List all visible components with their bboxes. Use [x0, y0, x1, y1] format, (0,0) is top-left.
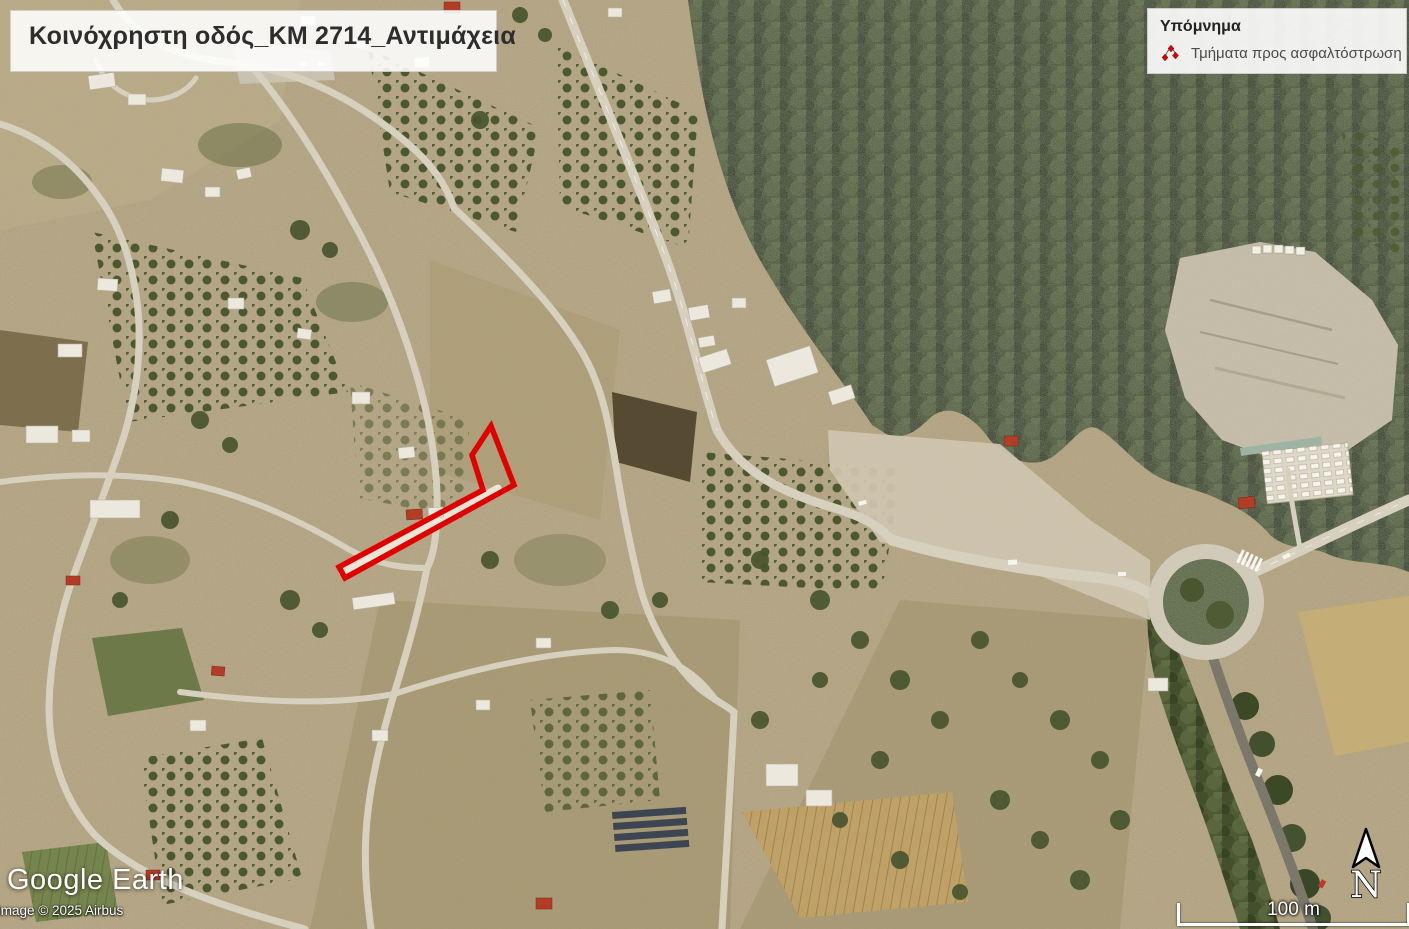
legend-panel: Υπόμνημα Τμήματα προς ασφαλτόστρωση: [1147, 8, 1407, 74]
copyright-attribution: Image © 2025 Airbus: [0, 903, 123, 918]
cemetery: [1262, 443, 1353, 504]
page-title: Κοινόχρηστη οδός_ΚΜ 2714_Αντιμάχεια: [29, 22, 478, 51]
legend-item-label: Τμήματα προς ασφαλτόστρωση: [1191, 45, 1402, 62]
north-arrow-glyph: [1353, 829, 1379, 867]
legend-title: Υπόμνημα: [1160, 18, 1396, 36]
google-earth-logo: Google Earth: [7, 864, 184, 897]
scale-label: 100 m: [1267, 899, 1320, 921]
map-title-box: Κοινόχρηστη οδός_ΚΜ 2714_Αντιμάχεια: [10, 10, 497, 72]
google-earth-screenshot: Κοινόχρηστη οδός_ΚΜ 2714_Αντιμάχεια Υπόμ…: [0, 0, 1409, 929]
route-vertices-icon: [1160, 44, 1182, 62]
satellite-map[interactable]: [0, 0, 1409, 929]
north-arrow: N: [1342, 826, 1390, 902]
north-label: N: [1350, 865, 1382, 902]
scale-bar: 100 m: [1177, 903, 1409, 926]
roundabout: [1148, 544, 1264, 660]
legend-item: Τμήματα προς ασφαλτόστρωση: [1160, 44, 1396, 62]
